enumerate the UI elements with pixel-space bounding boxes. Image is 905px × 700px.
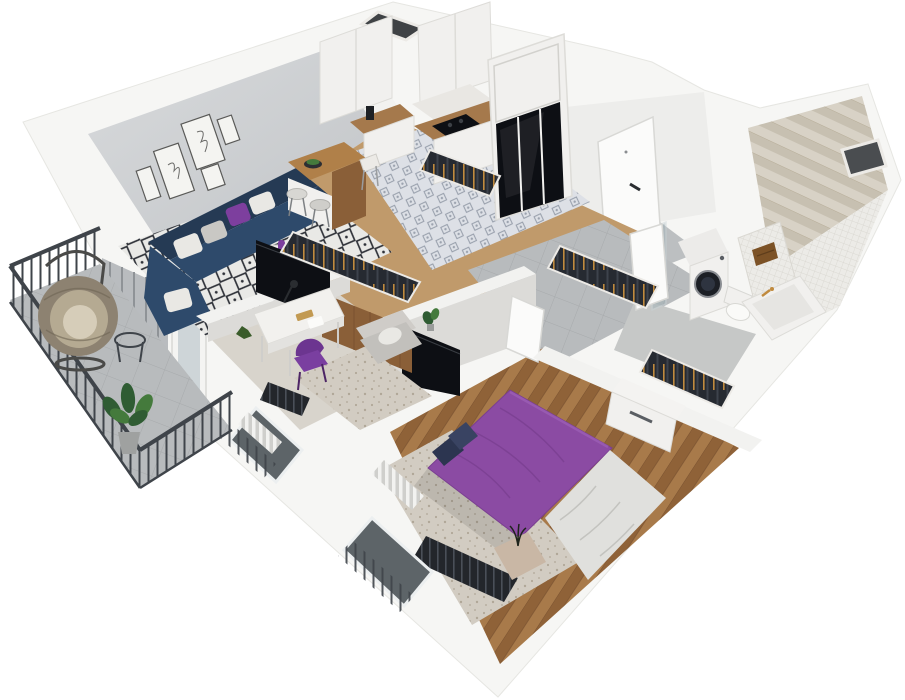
apartment-3d-floorplan-render	[0, 0, 905, 700]
cabinet-seam	[455, 14, 456, 92]
island-plant	[307, 159, 320, 165]
floorplan-canvas	[0, 0, 905, 700]
door-peephole	[625, 151, 628, 154]
desk-lamp-head	[290, 280, 298, 288]
coffee-machine	[366, 106, 374, 120]
washer-drum	[701, 277, 715, 291]
washer-dial	[720, 256, 724, 260]
burner	[448, 123, 452, 127]
egg-chair-cushion	[63, 305, 97, 339]
burner	[459, 119, 463, 123]
bath-faucet-knob	[770, 287, 774, 291]
